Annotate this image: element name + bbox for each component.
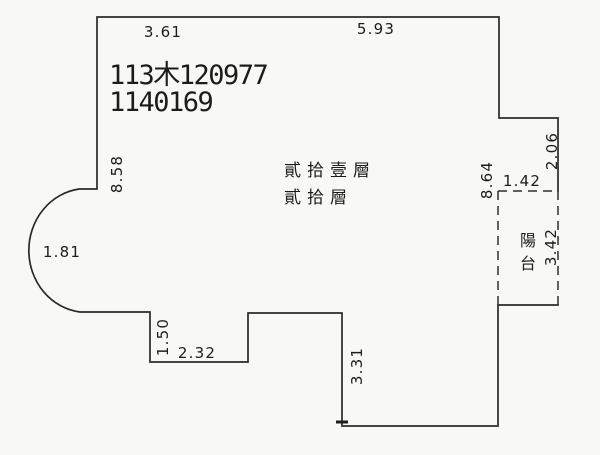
floor-plan-scan: 3.61 5.93 113木120977 1140169 8.58 貳拾壹層 貳…	[0, 0, 600, 455]
dim-top-right: 5.93	[357, 20, 395, 38]
floor-label-21: 貳拾壹層	[284, 161, 376, 181]
floor-label-20: 貳拾層	[284, 188, 353, 208]
dim-right-wall: 8.64	[478, 161, 496, 199]
dim-notch-width: 2.32	[178, 344, 216, 362]
dim-top-left: 3.61	[144, 23, 182, 41]
dim-lower-right: 3.31	[348, 347, 366, 385]
doc-number: 1140169	[109, 87, 213, 118]
dim-balcony-width: 1.42	[503, 172, 541, 190]
dim-bay-window: 1.81	[43, 243, 81, 261]
floor-plan-svg: 3.61 5.93 113木120977 1140169 8.58 貳拾壹層 貳…	[0, 0, 600, 455]
balcony-label-char-2: 台	[520, 254, 536, 273]
dim-left-wall: 8.58	[108, 155, 126, 193]
dim-balcony-depth: 3.42	[542, 228, 560, 266]
balcony-label-char-1: 陽	[520, 231, 536, 250]
dim-notch-depth: 1.50	[154, 318, 172, 356]
dim-right-upper: 2.06	[543, 132, 561, 170]
